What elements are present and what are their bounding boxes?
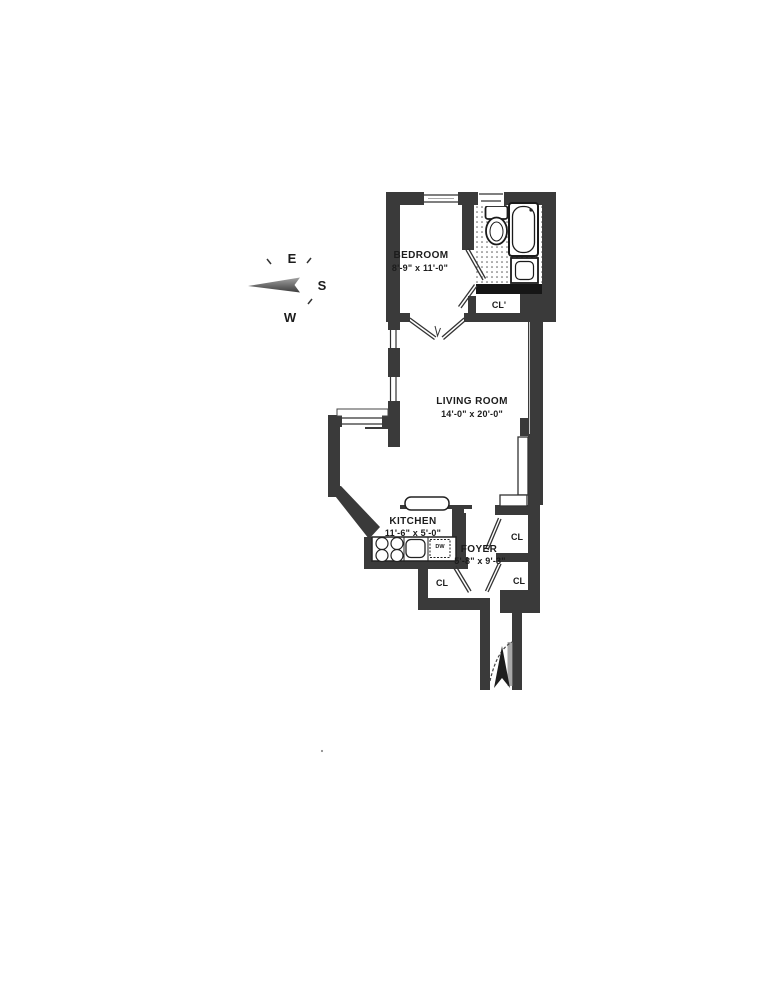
living-room-dimensions: 14'-0" x 20'-0" bbox=[441, 409, 503, 419]
bathroom-sink-icon bbox=[511, 258, 538, 283]
living-room-window-upper bbox=[387, 330, 401, 348]
compass-west-label: W bbox=[284, 310, 297, 325]
compass-tick-se bbox=[308, 299, 312, 304]
scan-speck bbox=[321, 750, 323, 752]
wall-segment bbox=[328, 415, 340, 497]
kitchen-dimensions: 11'-6" x 5'-0" bbox=[385, 528, 441, 538]
foyer-dimensions: 5'-8" x 9'-3" bbox=[454, 556, 505, 566]
compass-east-label: E bbox=[288, 251, 297, 266]
living-room-window-lower bbox=[387, 377, 401, 401]
wall-segment bbox=[464, 313, 522, 322]
wall-segment bbox=[542, 192, 556, 294]
wall-segment bbox=[528, 322, 543, 505]
compass-tick-nw bbox=[267, 259, 271, 264]
foyer-name: FOYER bbox=[461, 544, 498, 555]
compass-tick-ne bbox=[307, 258, 311, 263]
floor-plan-svg: E S W bbox=[0, 0, 772, 1000]
wall-segment bbox=[468, 296, 476, 313]
bathtub-icon bbox=[509, 203, 538, 256]
floor-plan-page: E S W bbox=[0, 0, 772, 1000]
wall-segment bbox=[388, 348, 400, 377]
bedroom-window bbox=[424, 190, 458, 206]
wall-segment bbox=[520, 294, 556, 322]
toilet-icon bbox=[486, 206, 508, 245]
alcove-window bbox=[337, 409, 388, 427]
wall-segment bbox=[388, 313, 400, 330]
wall-segment bbox=[418, 598, 490, 610]
wall-segment bbox=[500, 590, 540, 613]
kitchen-sink-icon bbox=[406, 540, 425, 558]
french-door-left-leaf bbox=[409, 318, 437, 340]
wall-segment bbox=[382, 415, 400, 427]
french-door-right-leaf bbox=[442, 318, 466, 340]
kitchen-name: KITCHEN bbox=[389, 516, 436, 527]
compass-south-label: S bbox=[318, 278, 327, 293]
compass-rose: E S W bbox=[248, 251, 327, 325]
bathroom bbox=[466, 203, 542, 284]
foyer-upper-right-closet-label: CL bbox=[511, 532, 523, 542]
angled-wall bbox=[328, 486, 380, 539]
french-door-meeting-mark bbox=[435, 326, 441, 336]
pass-through-counter bbox=[405, 497, 449, 510]
foyer-lower-right-closet-door bbox=[486, 563, 502, 592]
bedroom-closet-label: CL' bbox=[492, 300, 506, 310]
radiator bbox=[518, 437, 528, 495]
north-arrow bbox=[248, 278, 300, 293]
bedroom-dimensions: 8'-9" x 11'-0" bbox=[392, 263, 448, 273]
living-room-builtins bbox=[500, 322, 530, 506]
bedroom-name: BEDROOM bbox=[393, 250, 448, 261]
foyer-lower-right-closet-label: CL bbox=[513, 576, 525, 586]
foyer-lower-left-closet-label: CL bbox=[436, 578, 448, 588]
wall-segment bbox=[480, 598, 490, 690]
wall-segment bbox=[512, 613, 522, 690]
foyer-lower-left-closet-door bbox=[454, 566, 472, 593]
entry bbox=[490, 642, 513, 688]
dishwasher-label: DW bbox=[435, 544, 445, 550]
wall-segment bbox=[520, 418, 530, 436]
bathroom-bottom-wall bbox=[476, 284, 542, 294]
living-room-name: LIVING ROOM bbox=[436, 396, 508, 407]
bathroom-window bbox=[478, 189, 504, 206]
window-sill-step bbox=[500, 495, 527, 506]
wall-segment bbox=[462, 192, 474, 250]
